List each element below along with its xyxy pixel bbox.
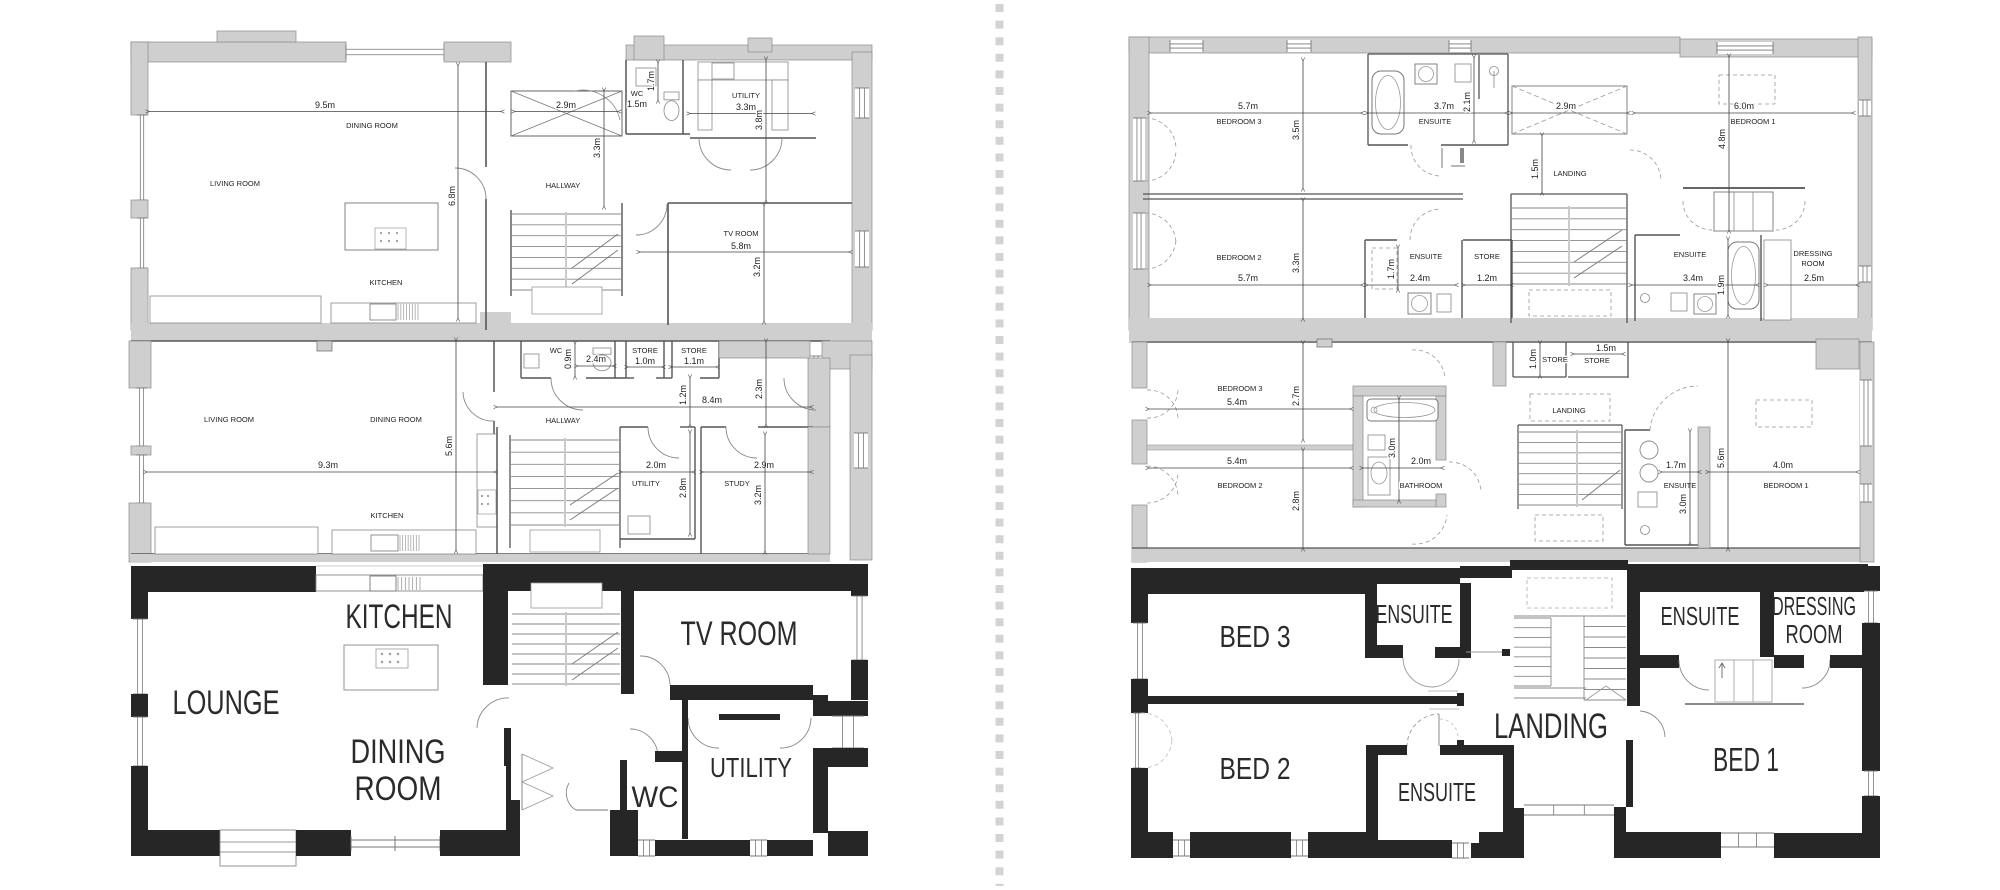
svg-text:ENSUITE: ENSUITE xyxy=(1410,252,1443,261)
svg-text:KITCHEN: KITCHEN xyxy=(370,278,403,287)
svg-text:9.3m: 9.3m xyxy=(318,460,338,470)
svg-text:WC: WC xyxy=(632,781,679,814)
svg-text:1.7m: 1.7m xyxy=(1666,460,1686,470)
svg-text:ENSUITE: ENSUITE xyxy=(1419,117,1452,126)
svg-text:3.5m: 3.5m xyxy=(1291,120,1301,140)
svg-text:DRESSING: DRESSING xyxy=(1772,591,1856,621)
svg-text:BED 2: BED 2 xyxy=(1220,751,1291,786)
svg-text:6.0m: 6.0m xyxy=(1734,101,1754,111)
svg-text:2.7m: 2.7m xyxy=(1291,386,1301,406)
svg-text:BEDROOM 3: BEDROOM 3 xyxy=(1216,117,1261,126)
svg-text:5.7m: 5.7m xyxy=(1238,273,1258,283)
svg-text:3.0m: 3.0m xyxy=(1678,494,1688,514)
svg-text:ENSUITE: ENSUITE xyxy=(1376,599,1453,629)
svg-text:6.8m: 6.8m xyxy=(447,186,457,206)
svg-text:0.9m: 0.9m xyxy=(563,349,573,369)
svg-text:LANDING: LANDING xyxy=(1494,707,1608,746)
svg-text:STORE: STORE xyxy=(681,346,707,355)
svg-text:HALLWAY: HALLWAY xyxy=(546,416,580,425)
svg-text:BED 3: BED 3 xyxy=(1220,619,1291,654)
svg-text:1.0m: 1.0m xyxy=(635,356,655,366)
svg-text:5.6m: 5.6m xyxy=(444,436,454,456)
svg-text:WC: WC xyxy=(550,346,563,355)
svg-text:STORE: STORE xyxy=(1584,356,1610,365)
svg-text:2.0m: 2.0m xyxy=(646,460,666,470)
svg-text:KITCHEN: KITCHEN xyxy=(346,598,453,636)
svg-text:3.0m: 3.0m xyxy=(1387,438,1397,458)
svg-text:1.5m: 1.5m xyxy=(1530,159,1540,179)
svg-text:STORE: STORE xyxy=(1474,252,1500,261)
svg-text:1.0m: 1.0m xyxy=(1528,349,1538,369)
svg-text:LIVING ROOM: LIVING ROOM xyxy=(210,179,260,188)
svg-text:1.7m: 1.7m xyxy=(1386,259,1396,279)
svg-text:5.7m: 5.7m xyxy=(1238,101,1258,111)
svg-text:ENSUITE: ENSUITE xyxy=(1674,250,1707,259)
svg-text:WC: WC xyxy=(631,89,644,98)
svg-text:BEDROOM 3: BEDROOM 3 xyxy=(1217,384,1262,393)
svg-text:KITCHEN: KITCHEN xyxy=(371,511,404,520)
svg-text:3.3m: 3.3m xyxy=(592,138,602,158)
svg-text:5.4m: 5.4m xyxy=(1227,456,1247,466)
svg-text:LANDING: LANDING xyxy=(1553,169,1587,178)
svg-text:3.3m: 3.3m xyxy=(736,102,756,112)
svg-text:DINING: DINING xyxy=(351,733,446,771)
svg-text:BEDROOM 2: BEDROOM 2 xyxy=(1216,253,1261,262)
svg-text:9.5m: 9.5m xyxy=(315,100,335,110)
svg-text:ENSUITE: ENSUITE xyxy=(1664,481,1697,490)
svg-text:3.8m: 3.8m xyxy=(754,110,764,130)
svg-text:8.4m: 8.4m xyxy=(702,395,722,405)
svg-text:5.8m: 5.8m xyxy=(731,241,751,251)
svg-text:2.8m: 2.8m xyxy=(678,478,688,498)
svg-text:ROOM: ROOM xyxy=(355,770,442,808)
svg-text:3.4m: 3.4m xyxy=(1683,273,1703,283)
svg-text:5.6m: 5.6m xyxy=(1716,448,1726,468)
svg-text:ENSUITE: ENSUITE xyxy=(1661,601,1740,631)
svg-text:ROOM: ROOM xyxy=(1801,259,1824,268)
svg-text:UTILITY: UTILITY xyxy=(710,752,792,783)
svg-text:2.3m: 2.3m xyxy=(754,379,764,399)
svg-text:1.7m: 1.7m xyxy=(646,71,656,91)
svg-text:1.9m: 1.9m xyxy=(1716,275,1726,295)
svg-text:4.8m: 4.8m xyxy=(1717,129,1727,149)
svg-text:2.1m: 2.1m xyxy=(1462,92,1472,112)
svg-text:TV ROOM: TV ROOM xyxy=(724,229,759,238)
svg-text:BEDROOM 1: BEDROOM 1 xyxy=(1730,117,1775,126)
svg-text:1.1m: 1.1m xyxy=(684,356,704,366)
svg-text:HALLWAY: HALLWAY xyxy=(546,181,580,190)
svg-text:2.5m: 2.5m xyxy=(1804,273,1824,283)
svg-text:LOUNGE: LOUNGE xyxy=(173,684,280,722)
svg-text:UTILITY: UTILITY xyxy=(632,479,660,488)
svg-text:BATHROOM: BATHROOM xyxy=(1400,481,1443,490)
svg-text:2.0m: 2.0m xyxy=(1411,456,1431,466)
svg-text:3.2m: 3.2m xyxy=(752,257,762,277)
svg-text:1.5m: 1.5m xyxy=(1596,343,1616,353)
svg-text:TV ROOM: TV ROOM xyxy=(681,615,798,653)
svg-text:5.4m: 5.4m xyxy=(1227,397,1247,407)
svg-text:2.8m: 2.8m xyxy=(1291,491,1301,511)
svg-text:BEDROOM 2: BEDROOM 2 xyxy=(1217,481,1262,490)
svg-text:DINING ROOM: DINING ROOM xyxy=(370,415,422,424)
svg-text:BED 1: BED 1 xyxy=(1713,741,1779,778)
svg-text:2.9m: 2.9m xyxy=(556,100,576,110)
svg-text:3.3m: 3.3m xyxy=(1291,253,1301,273)
svg-text:ENSUITE: ENSUITE xyxy=(1398,777,1476,807)
svg-text:STORE: STORE xyxy=(1542,355,1568,364)
svg-text:DRESSING: DRESSING xyxy=(1793,249,1832,258)
svg-text:BEDROOM 1: BEDROOM 1 xyxy=(1763,481,1808,490)
svg-text:2.9m: 2.9m xyxy=(754,460,774,470)
svg-text:1.5m: 1.5m xyxy=(627,99,647,109)
svg-text:LIVING ROOM: LIVING ROOM xyxy=(204,415,254,424)
svg-text:2.4m: 2.4m xyxy=(1410,273,1430,283)
svg-text:1.2m: 1.2m xyxy=(1477,273,1497,283)
svg-text:DINING ROOM: DINING ROOM xyxy=(346,121,398,130)
svg-text:ROOM: ROOM xyxy=(1786,619,1843,649)
svg-text:3.7m: 3.7m xyxy=(1434,101,1454,111)
svg-text:LANDING: LANDING xyxy=(1552,406,1586,415)
svg-text:STUDY: STUDY xyxy=(724,479,749,488)
svg-text:2.4m: 2.4m xyxy=(586,354,606,364)
svg-text:4.0m: 4.0m xyxy=(1773,460,1793,470)
svg-text:1.2m: 1.2m xyxy=(678,385,688,405)
svg-text:2.9m: 2.9m xyxy=(1556,101,1576,111)
svg-text:UTILITY: UTILITY xyxy=(732,91,760,100)
svg-text:3.2m: 3.2m xyxy=(753,485,763,505)
svg-text:STORE: STORE xyxy=(632,346,658,355)
